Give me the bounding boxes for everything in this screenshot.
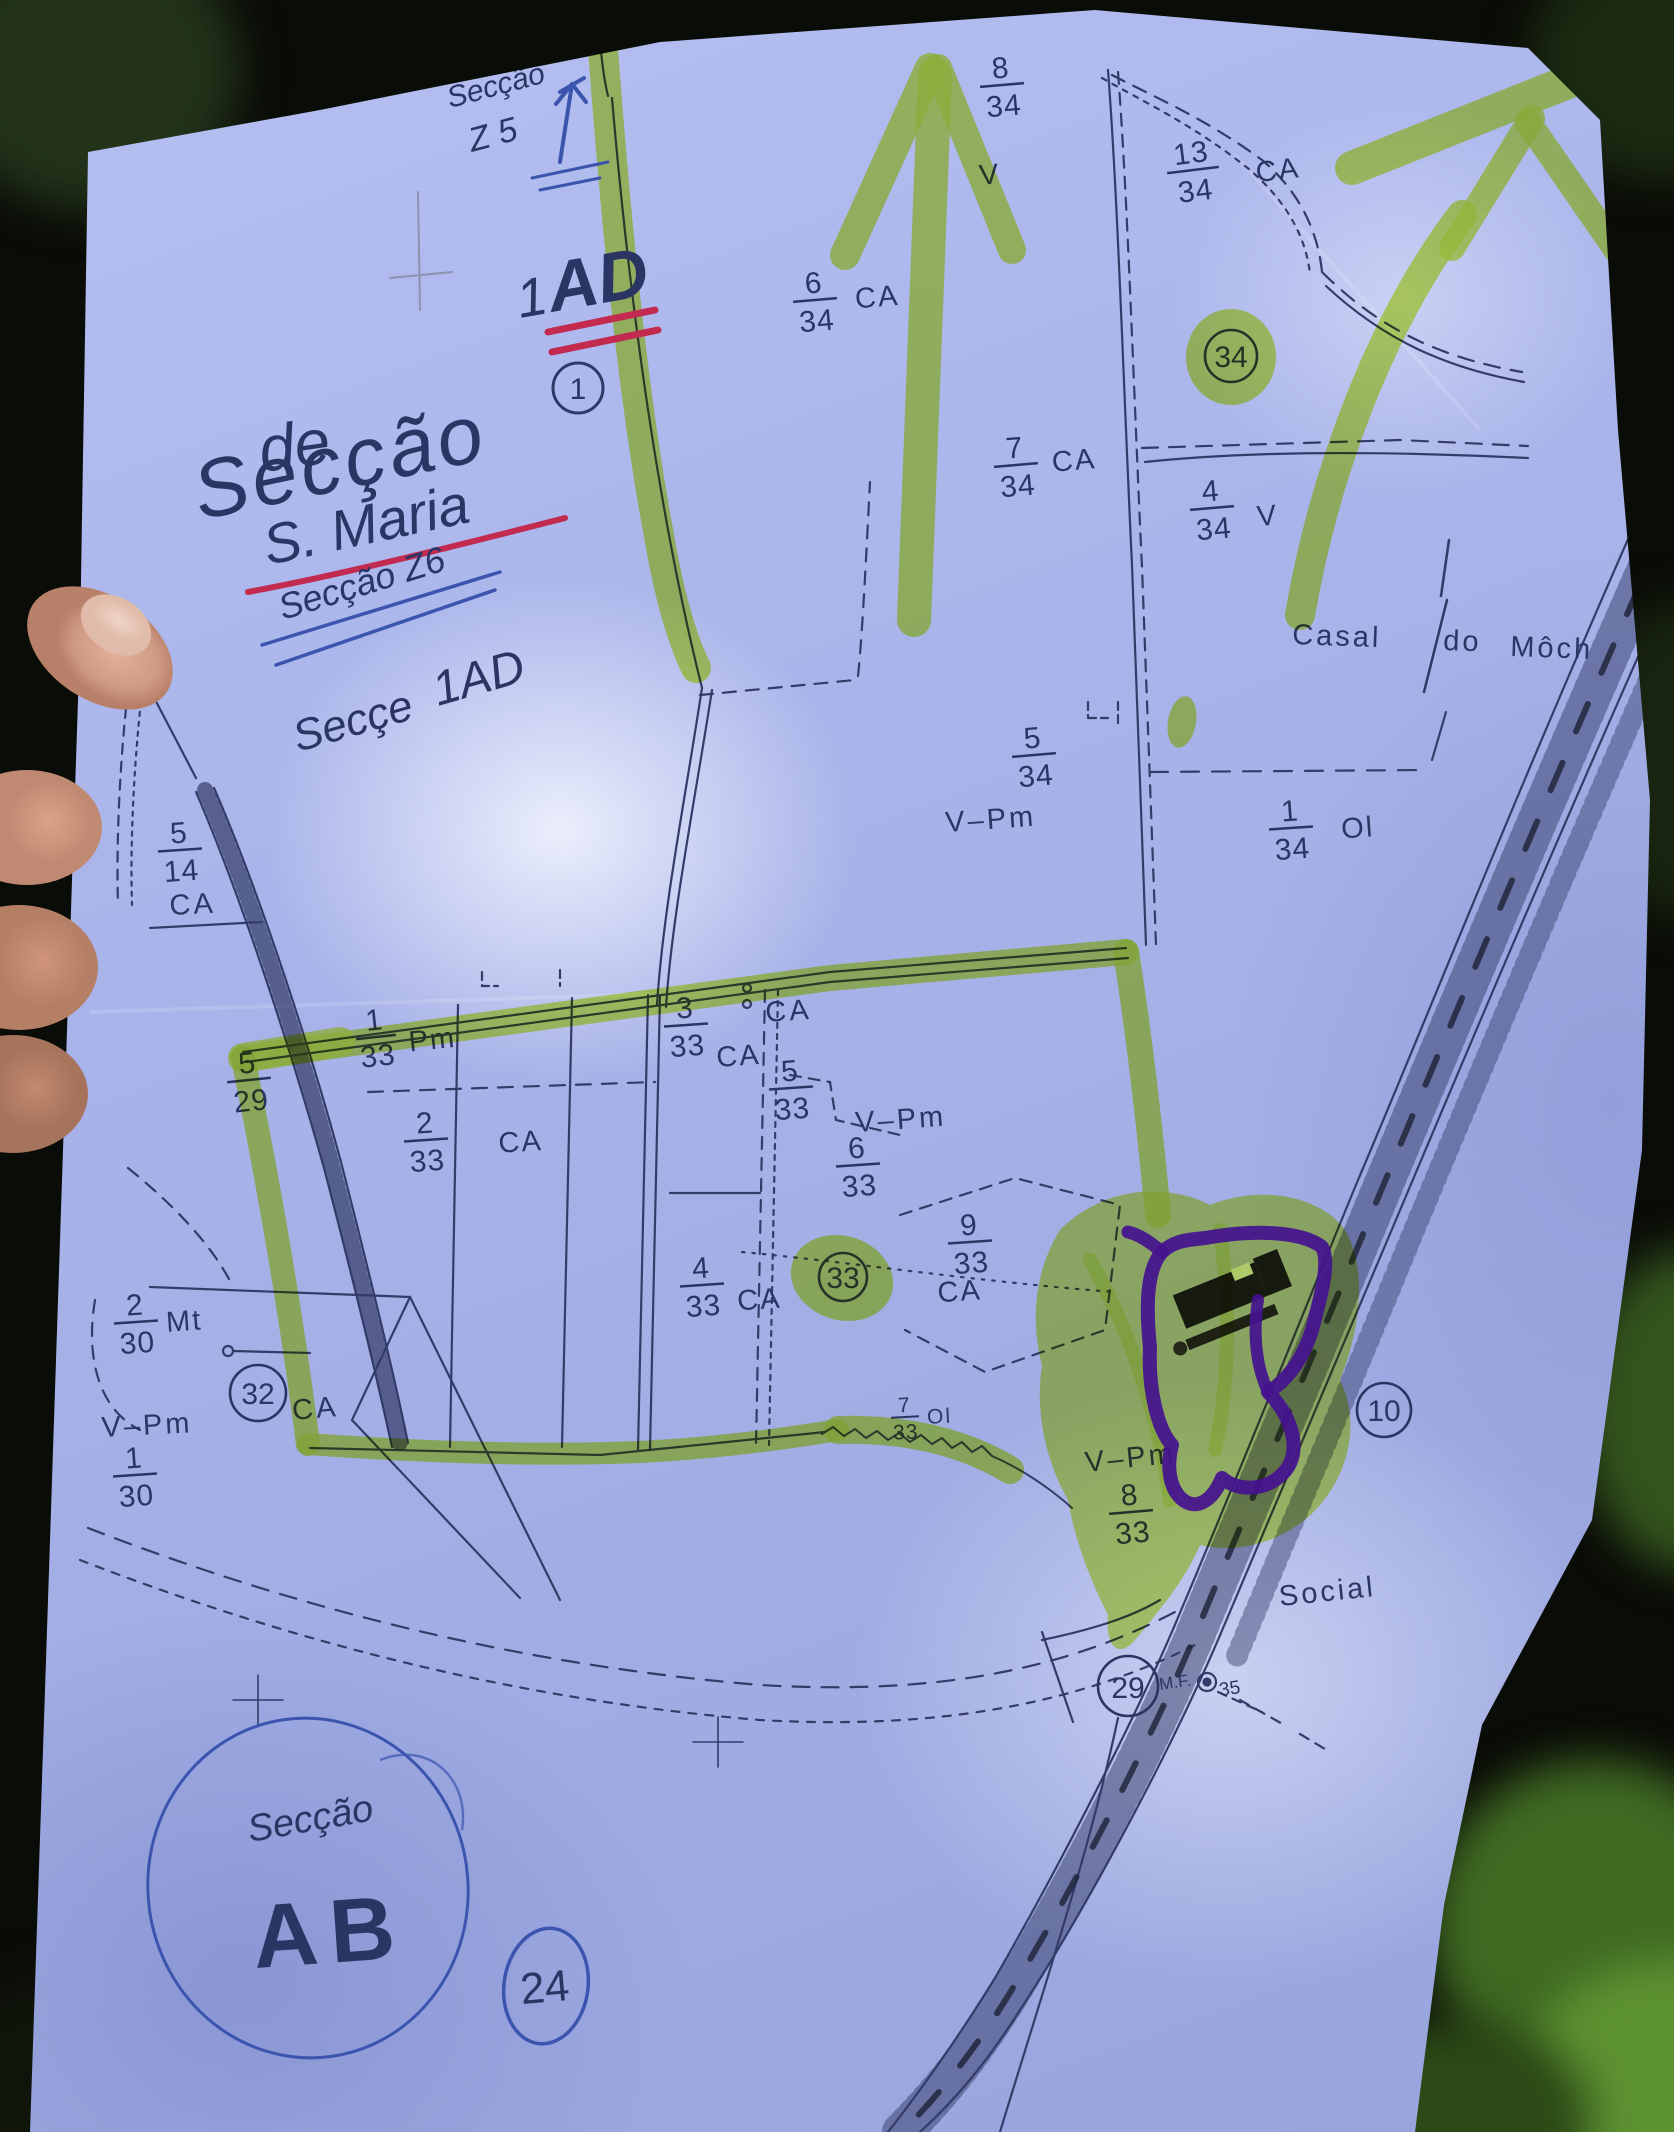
svg-text:Secção: Secção: [443, 57, 548, 115]
svg-text:V: V: [1256, 499, 1280, 533]
parcel-label: 134Ol: [1267, 789, 1377, 867]
highlight-circle-33: [780, 1222, 905, 1334]
parcel-circle-32: 32: [230, 1365, 286, 1421]
svg-text:7: 7: [897, 1394, 911, 1418]
parcel-label: 534: [1009, 720, 1059, 795]
circled-1: 1: [553, 363, 603, 413]
svg-text:5: 5: [169, 816, 189, 850]
parcel-label: 634CA: [790, 260, 902, 340]
highlight-circle-34: [1186, 309, 1276, 405]
land-use-vpm: V–Pm: [944, 801, 1037, 839]
land-use-ca: CA: [764, 994, 812, 1029]
svg-text:24: 24: [518, 1961, 571, 2014]
svg-text:4: 4: [691, 1251, 711, 1285]
svg-text:5: 5: [780, 1054, 800, 1088]
land-use-ca: CA: [169, 888, 217, 922]
svg-text:Mt: Mt: [165, 1304, 203, 1338]
parcel-label: 734CA: [991, 425, 1099, 505]
svg-text:CA: CA: [497, 1125, 543, 1160]
svg-text:34: 34: [1274, 832, 1312, 867]
svg-text:33: 33: [685, 1289, 723, 1324]
svg-text:33: 33: [774, 1092, 812, 1127]
land-use-vpm: V–Pm: [854, 1101, 947, 1139]
parcel-label: 533: [767, 1054, 816, 1128]
highlight-arrow-curved: [1300, 82, 1622, 615]
svg-text:CA: CA: [936, 1274, 982, 1309]
parcel-label: 433CA: [678, 1247, 783, 1325]
svg-text:1AD: 1AD: [426, 640, 530, 717]
svg-text:4: 4: [1200, 474, 1220, 508]
parcel-label: 233CA: [402, 1099, 545, 1179]
parcel-label: 230Mt: [112, 1284, 205, 1361]
svg-text:13: 13: [1171, 135, 1210, 172]
svg-text:CA: CA: [1051, 443, 1098, 479]
svg-text:34: 34: [798, 303, 836, 339]
section-ab-printed: AB: [249, 1877, 410, 1987]
svg-text:1: 1: [1280, 794, 1300, 828]
svg-text:33: 33: [669, 1029, 707, 1064]
parcel-label: 633: [834, 1131, 883, 1205]
parcel-label: 834: [977, 50, 1027, 125]
svg-text:CA: CA: [854, 280, 901, 316]
survey-mark-number: 35: [1218, 1677, 1242, 1701]
svg-text:2: 2: [415, 1106, 435, 1140]
section-ab-handwriting: Secção: [244, 1787, 376, 1850]
svg-text:9: 9: [959, 1208, 979, 1242]
svg-text:Ol: Ol: [1340, 811, 1375, 845]
svg-text:CA: CA: [715, 1039, 761, 1074]
parcel-label: 1334CA: [1163, 124, 1303, 211]
svg-text:34: 34: [985, 88, 1023, 124]
svg-text:34: 34: [1017, 758, 1055, 794]
parcel-label: 933CA: [932, 1208, 997, 1310]
paper-sheet: 834 634CA 1334CA 734CA 434V 534 134Ol 51…: [0, 0, 1674, 2132]
svg-text:30: 30: [119, 1326, 157, 1361]
place-name-do: do: [1443, 625, 1482, 658]
parcel-circle-29: 29: [1098, 1656, 1158, 1716]
svg-text:29: 29: [1111, 1672, 1144, 1705]
svg-text:5: 5: [1022, 721, 1042, 755]
parcel-circle-10: 10: [1357, 1383, 1411, 1437]
svg-text:Secçe: Secçe: [287, 681, 418, 762]
parcel-label: 130: [111, 1441, 160, 1515]
svg-text:34: 34: [1195, 511, 1233, 547]
svg-text:34: 34: [999, 468, 1037, 504]
parcel-label: 434V: [1187, 469, 1280, 547]
svg-text:6: 6: [803, 266, 823, 300]
svg-text:33: 33: [409, 1144, 447, 1179]
svg-text:CA: CA: [1254, 152, 1302, 189]
svg-text:10: 10: [1367, 1395, 1400, 1428]
svg-text:34: 34: [1176, 173, 1215, 210]
svg-text:14: 14: [163, 854, 201, 889]
svg-text:33: 33: [841, 1169, 879, 1204]
svg-text:Z 5: Z 5: [463, 110, 521, 160]
place-name-mocho: Môch: [1510, 631, 1594, 666]
cadastral-map-photo: 834 634CA 1334CA 734CA 434V 534 134Ol 51…: [0, 0, 1674, 2132]
svg-text:2: 2: [125, 1288, 145, 1322]
place-name-social: Social: [1277, 1571, 1377, 1613]
svg-text:1: 1: [570, 373, 587, 406]
land-use-vpm: V–Pm: [101, 1407, 194, 1444]
svg-text:7: 7: [1004, 431, 1024, 465]
note-seccao-z5: Secção Z 5: [443, 57, 548, 160]
highlight-arrow-up: [845, 68, 1012, 620]
svg-text:de: de: [254, 405, 335, 486]
svg-text:30: 30: [118, 1479, 156, 1514]
highlight-dab: [1164, 694, 1201, 750]
note-pencil: Secçe 1AD: [287, 640, 531, 762]
svg-text:CA: CA: [736, 1283, 782, 1318]
parcel-label: 514: [156, 816, 205, 890]
svg-text:8: 8: [990, 51, 1010, 85]
circled-24: 24: [496, 1923, 595, 2050]
section-ab-circle: Secção AB: [126, 1697, 490, 2078]
svg-text:32: 32: [241, 1378, 274, 1411]
svg-text:1: 1: [124, 1441, 144, 1475]
